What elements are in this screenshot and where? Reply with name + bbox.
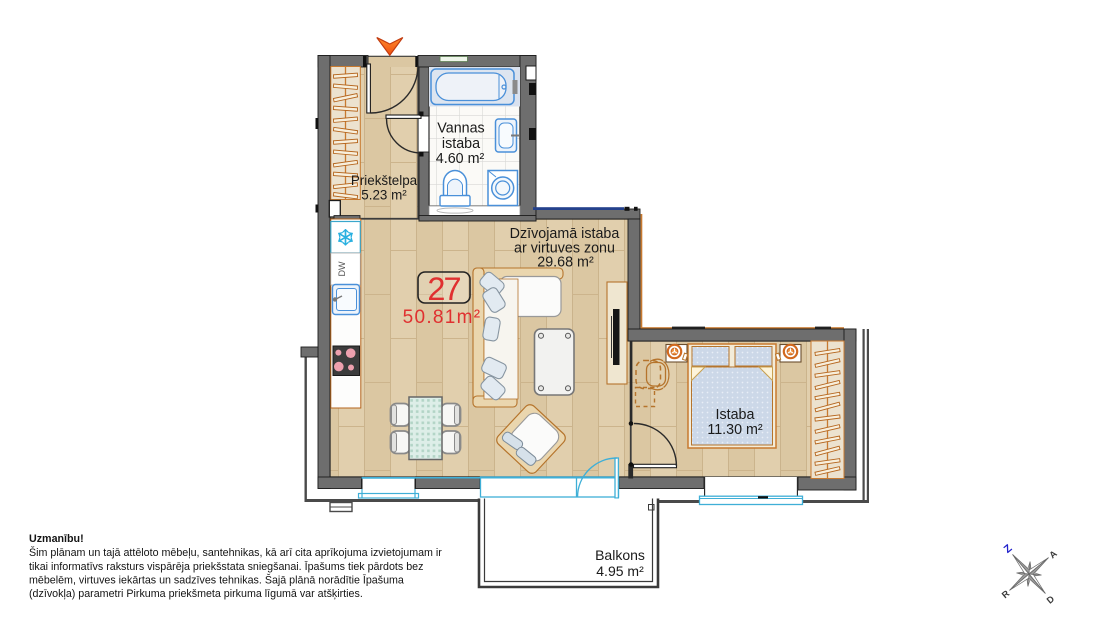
svg-text:istaba: istaba xyxy=(442,136,480,152)
svg-text:Istaba: Istaba xyxy=(716,407,755,423)
svg-text:27: 27 xyxy=(427,271,460,307)
svg-text:Priekštelpa: Priekštelpa xyxy=(351,173,418,188)
svg-text:50.81m²: 50.81m² xyxy=(403,307,482,328)
svg-text:(dzīvokļa) parametri Pirkuma p: (dzīvokļa) parametri Pirkuma priekšmeta … xyxy=(29,588,363,600)
svg-text:5.23 m²: 5.23 m² xyxy=(361,188,407,203)
svg-text:4.60 m²: 4.60 m² xyxy=(436,151,485,167)
svg-text:tikai informatīvs raksturs vis: tikai informatīvs raksturs vispārēja pri… xyxy=(29,561,423,573)
svg-text:29.68 m²: 29.68 m² xyxy=(537,255,594,271)
svg-text:Šim plānam un tajā attēloto mē: Šim plānam un tajā attēloto mēbeļu, sant… xyxy=(29,546,442,559)
svg-text:Uzmanību!: Uzmanību! xyxy=(29,533,84,545)
svg-text:4.95 m²: 4.95 m² xyxy=(596,563,644,579)
svg-text:Vannas: Vannas xyxy=(437,121,484,137)
svg-text:Balkons: Balkons xyxy=(595,547,645,563)
svg-text:mēbelēm, virtuves iekārtas un: mēbelēm, virtuves iekārtas un sadzīves t… xyxy=(29,573,404,586)
svg-text:DW: DW xyxy=(337,261,347,276)
svg-text:11.30 m²: 11.30 m² xyxy=(707,422,763,438)
